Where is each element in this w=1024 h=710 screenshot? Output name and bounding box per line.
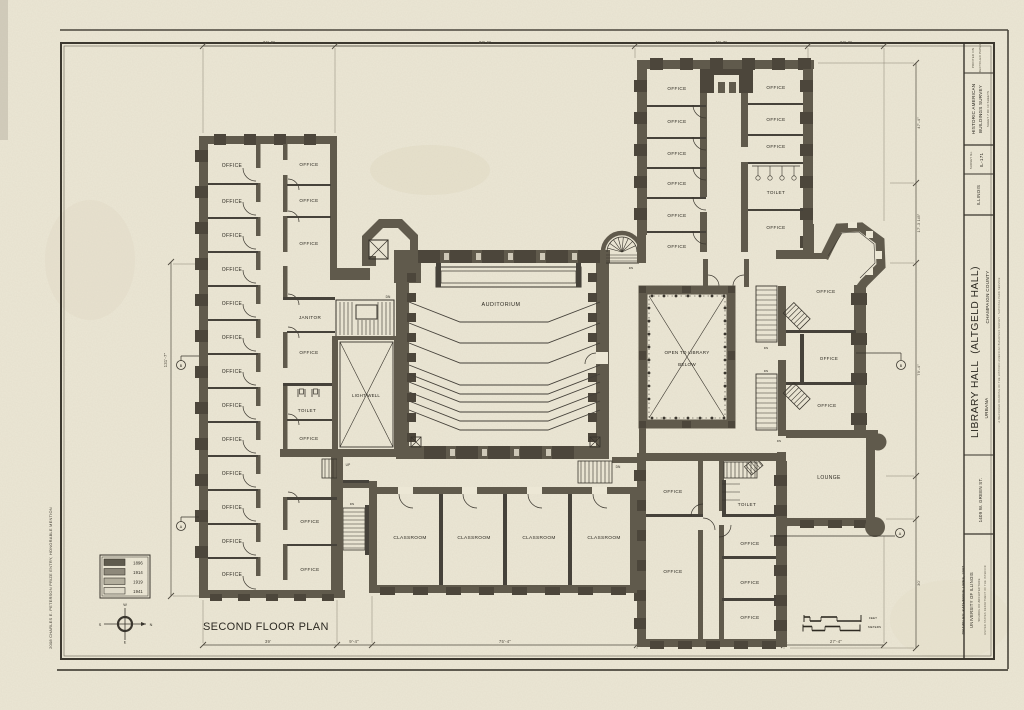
- svg-text:OFFICE: OFFICE: [663, 489, 682, 494]
- svg-text:PRINTED ON: PRINTED ON: [971, 48, 975, 69]
- svg-text:N: N: [150, 623, 153, 627]
- svg-text:22'-2": 22'-2": [840, 40, 852, 45]
- svg-text:1914: 1914: [133, 570, 143, 575]
- svg-text:JANITOR: JANITOR: [299, 315, 322, 320]
- svg-text:75'-4": 75'-4": [499, 639, 511, 644]
- svg-text:AUDITORIUM: AUDITORIUM: [481, 302, 520, 308]
- svg-text:TOILET: TOILET: [767, 190, 785, 195]
- svg-text:OFFICE: OFFICE: [766, 117, 785, 122]
- svg-text:OFFICE: OFFICE: [222, 233, 243, 239]
- svg-text:OFFICE: OFFICE: [740, 580, 759, 585]
- svg-text:DN: DN: [350, 502, 355, 506]
- svg-text:OFFICE: OFFICE: [299, 350, 318, 355]
- svg-text:URBANA: URBANA: [984, 397, 989, 419]
- svg-text:OFFICE: OFFICE: [222, 301, 243, 307]
- svg-text:1941: 1941: [133, 589, 143, 594]
- svg-text:OPEN TO LIBRARY: OPEN TO LIBRARY: [664, 350, 709, 355]
- svg-text:DN: DN: [386, 295, 391, 299]
- svg-text:A MEASURED DRAWING OF THE HIST: A MEASURED DRAWING OF THE HISTORIC AMERI…: [997, 277, 1001, 422]
- svg-text:UP: UP: [346, 463, 351, 467]
- svg-text:OFFICE: OFFICE: [222, 471, 243, 477]
- svg-text:OFFICE: OFFICE: [222, 572, 243, 578]
- svg-text:SCHOOL OF ARCHITECTURE: SCHOOL OF ARCHITECTURE: [977, 578, 981, 621]
- svg-text:CLASSROOM: CLASSROOM: [393, 535, 426, 541]
- svg-text:OFFICE: OFFICE: [222, 335, 243, 341]
- svg-text:OFFICE: OFFICE: [766, 144, 785, 149]
- svg-text:OFFICE: OFFICE: [222, 539, 243, 545]
- svg-text:S: S: [99, 623, 102, 627]
- svg-text:OFFICE: OFFICE: [222, 163, 243, 169]
- svg-text:BELOW: BELOW: [678, 362, 696, 367]
- svg-text:OFFICE: OFFICE: [817, 403, 836, 408]
- svg-text:DN: DN: [764, 346, 769, 350]
- svg-text:30': 30': [916, 580, 921, 586]
- svg-text:CLASSROOM: CLASSROOM: [587, 535, 620, 541]
- svg-text:OFFICE: OFFICE: [740, 541, 759, 546]
- svg-text:LOUNGE: LOUNGE: [817, 475, 841, 481]
- svg-text:DRAWN BY: KATHERINE LIPES, 200: DRAWN BY: KATHERINE LIPES, 2007: [962, 566, 966, 635]
- svg-text:OFFICE: OFFICE: [222, 369, 243, 375]
- svg-text:ILLINOIS: ILLINOIS: [976, 185, 981, 205]
- svg-text:DN: DN: [777, 439, 781, 443]
- svg-text:LIGHT WELL: LIGHT WELL: [352, 393, 380, 398]
- svg-text:OFFICE: OFFICE: [300, 519, 319, 524]
- svg-text:OFFICE: OFFICE: [222, 437, 243, 443]
- svg-text:CLASSROOM: CLASSROOM: [457, 535, 490, 541]
- svg-text:17'-3 1/8": 17'-3 1/8": [916, 213, 921, 232]
- svg-text:OFFICE: OFFICE: [740, 615, 759, 620]
- svg-text:OFFICE: OFFICE: [299, 162, 318, 167]
- svg-text:SURVEY No.: SURVEY No.: [969, 151, 973, 170]
- svg-text:OFFICE: OFFICE: [222, 199, 243, 205]
- svg-text:UNITED STATES DEPARTMENT OF TH: UNITED STATES DEPARTMENT OF THE INTERIOR: [983, 565, 987, 635]
- svg-text:47'-4": 47'-4": [916, 117, 921, 129]
- svg-text:OFFICE: OFFICE: [667, 86, 686, 91]
- svg-text:49'-7": 49'-7": [715, 40, 727, 45]
- svg-text:E: E: [124, 641, 127, 645]
- svg-text:OFFICE: OFFICE: [667, 119, 686, 124]
- svg-text:9'-4": 9'-4": [349, 639, 359, 644]
- svg-text:1919: 1919: [133, 580, 143, 585]
- svg-text:DN: DN: [764, 369, 769, 373]
- svg-text:RECYCLED PAPER: RECYCLED PAPER: [978, 42, 982, 73]
- svg-text:OFFICE: OFFICE: [299, 436, 318, 441]
- svg-text:HISTORIC AMERICAN: HISTORIC AMERICAN: [971, 84, 976, 135]
- svg-text:1896: 1896: [133, 561, 143, 566]
- svg-text:OFFICE: OFFICE: [299, 198, 318, 203]
- svg-text:OFFICE: OFFICE: [667, 181, 686, 186]
- svg-text:OFFICE: OFFICE: [299, 241, 318, 246]
- svg-text:TOILET: TOILET: [738, 502, 756, 507]
- svg-text:IL-171: IL-171: [979, 152, 984, 167]
- svg-text:OFFICE: OFFICE: [222, 505, 243, 511]
- svg-text:SHEET 7 OF 10 SHEETS: SHEET 7 OF 10 SHEETS: [986, 91, 990, 127]
- svg-text:W: W: [123, 603, 127, 607]
- svg-text:39': 39': [265, 639, 271, 644]
- svg-text:OFFICE: OFFICE: [766, 85, 785, 90]
- svg-text:131'-7": 131'-7": [163, 352, 168, 367]
- svg-text:OFFICE: OFFICE: [300, 567, 319, 572]
- svg-text:OFFICE: OFFICE: [663, 569, 682, 574]
- svg-text:OFFICE: OFFICE: [820, 356, 839, 361]
- svg-text:27'-4": 27'-4": [830, 639, 842, 644]
- svg-text:SECOND FLOOR PLAN: SECOND FLOOR PLAN: [203, 621, 329, 633]
- svg-text:CHAMPAIGN COUNTY: CHAMPAIGN COUNTY: [985, 271, 990, 324]
- svg-text:TOILET: TOILET: [298, 408, 316, 413]
- svg-text:2008 CHARLES E. PETERSON PRIZE: 2008 CHARLES E. PETERSON PRIZE ENTRY, HO…: [48, 507, 53, 649]
- svg-text:DN: DN: [629, 266, 634, 270]
- svg-text:DN: DN: [616, 465, 621, 469]
- svg-text:OFFICE: OFFICE: [816, 289, 835, 294]
- svg-text:OFFICE: OFFICE: [667, 244, 686, 249]
- svg-text:83'-6": 83'-6": [479, 40, 491, 45]
- svg-text:OFFICE: OFFICE: [766, 225, 785, 230]
- svg-text:OFFICE: OFFICE: [667, 213, 686, 218]
- svg-text:BUILDINGS SURVEY: BUILDINGS SURVEY: [978, 85, 983, 133]
- svg-text:METERS: METERS: [868, 625, 881, 629]
- svg-text:CLASSROOM: CLASSROOM: [522, 535, 555, 541]
- svg-text:OFFICE: OFFICE: [222, 403, 243, 409]
- svg-text:1409 W. GREEN ST.: 1409 W. GREEN ST.: [978, 478, 983, 523]
- svg-text:FEET: FEET: [869, 616, 877, 620]
- svg-text:LIBRARY HALL (ALTGELD HALL): LIBRARY HALL (ALTGELD HALL): [970, 266, 981, 438]
- svg-text:OFFICE: OFFICE: [667, 151, 686, 156]
- svg-text:79'-4": 79'-4": [916, 364, 921, 376]
- svg-text:UNIVERSITY OF ILLINOIS: UNIVERSITY OF ILLINOIS: [969, 572, 974, 628]
- svg-text:36'-9": 36'-9": [263, 40, 275, 45]
- svg-text:OFFICE: OFFICE: [222, 267, 243, 273]
